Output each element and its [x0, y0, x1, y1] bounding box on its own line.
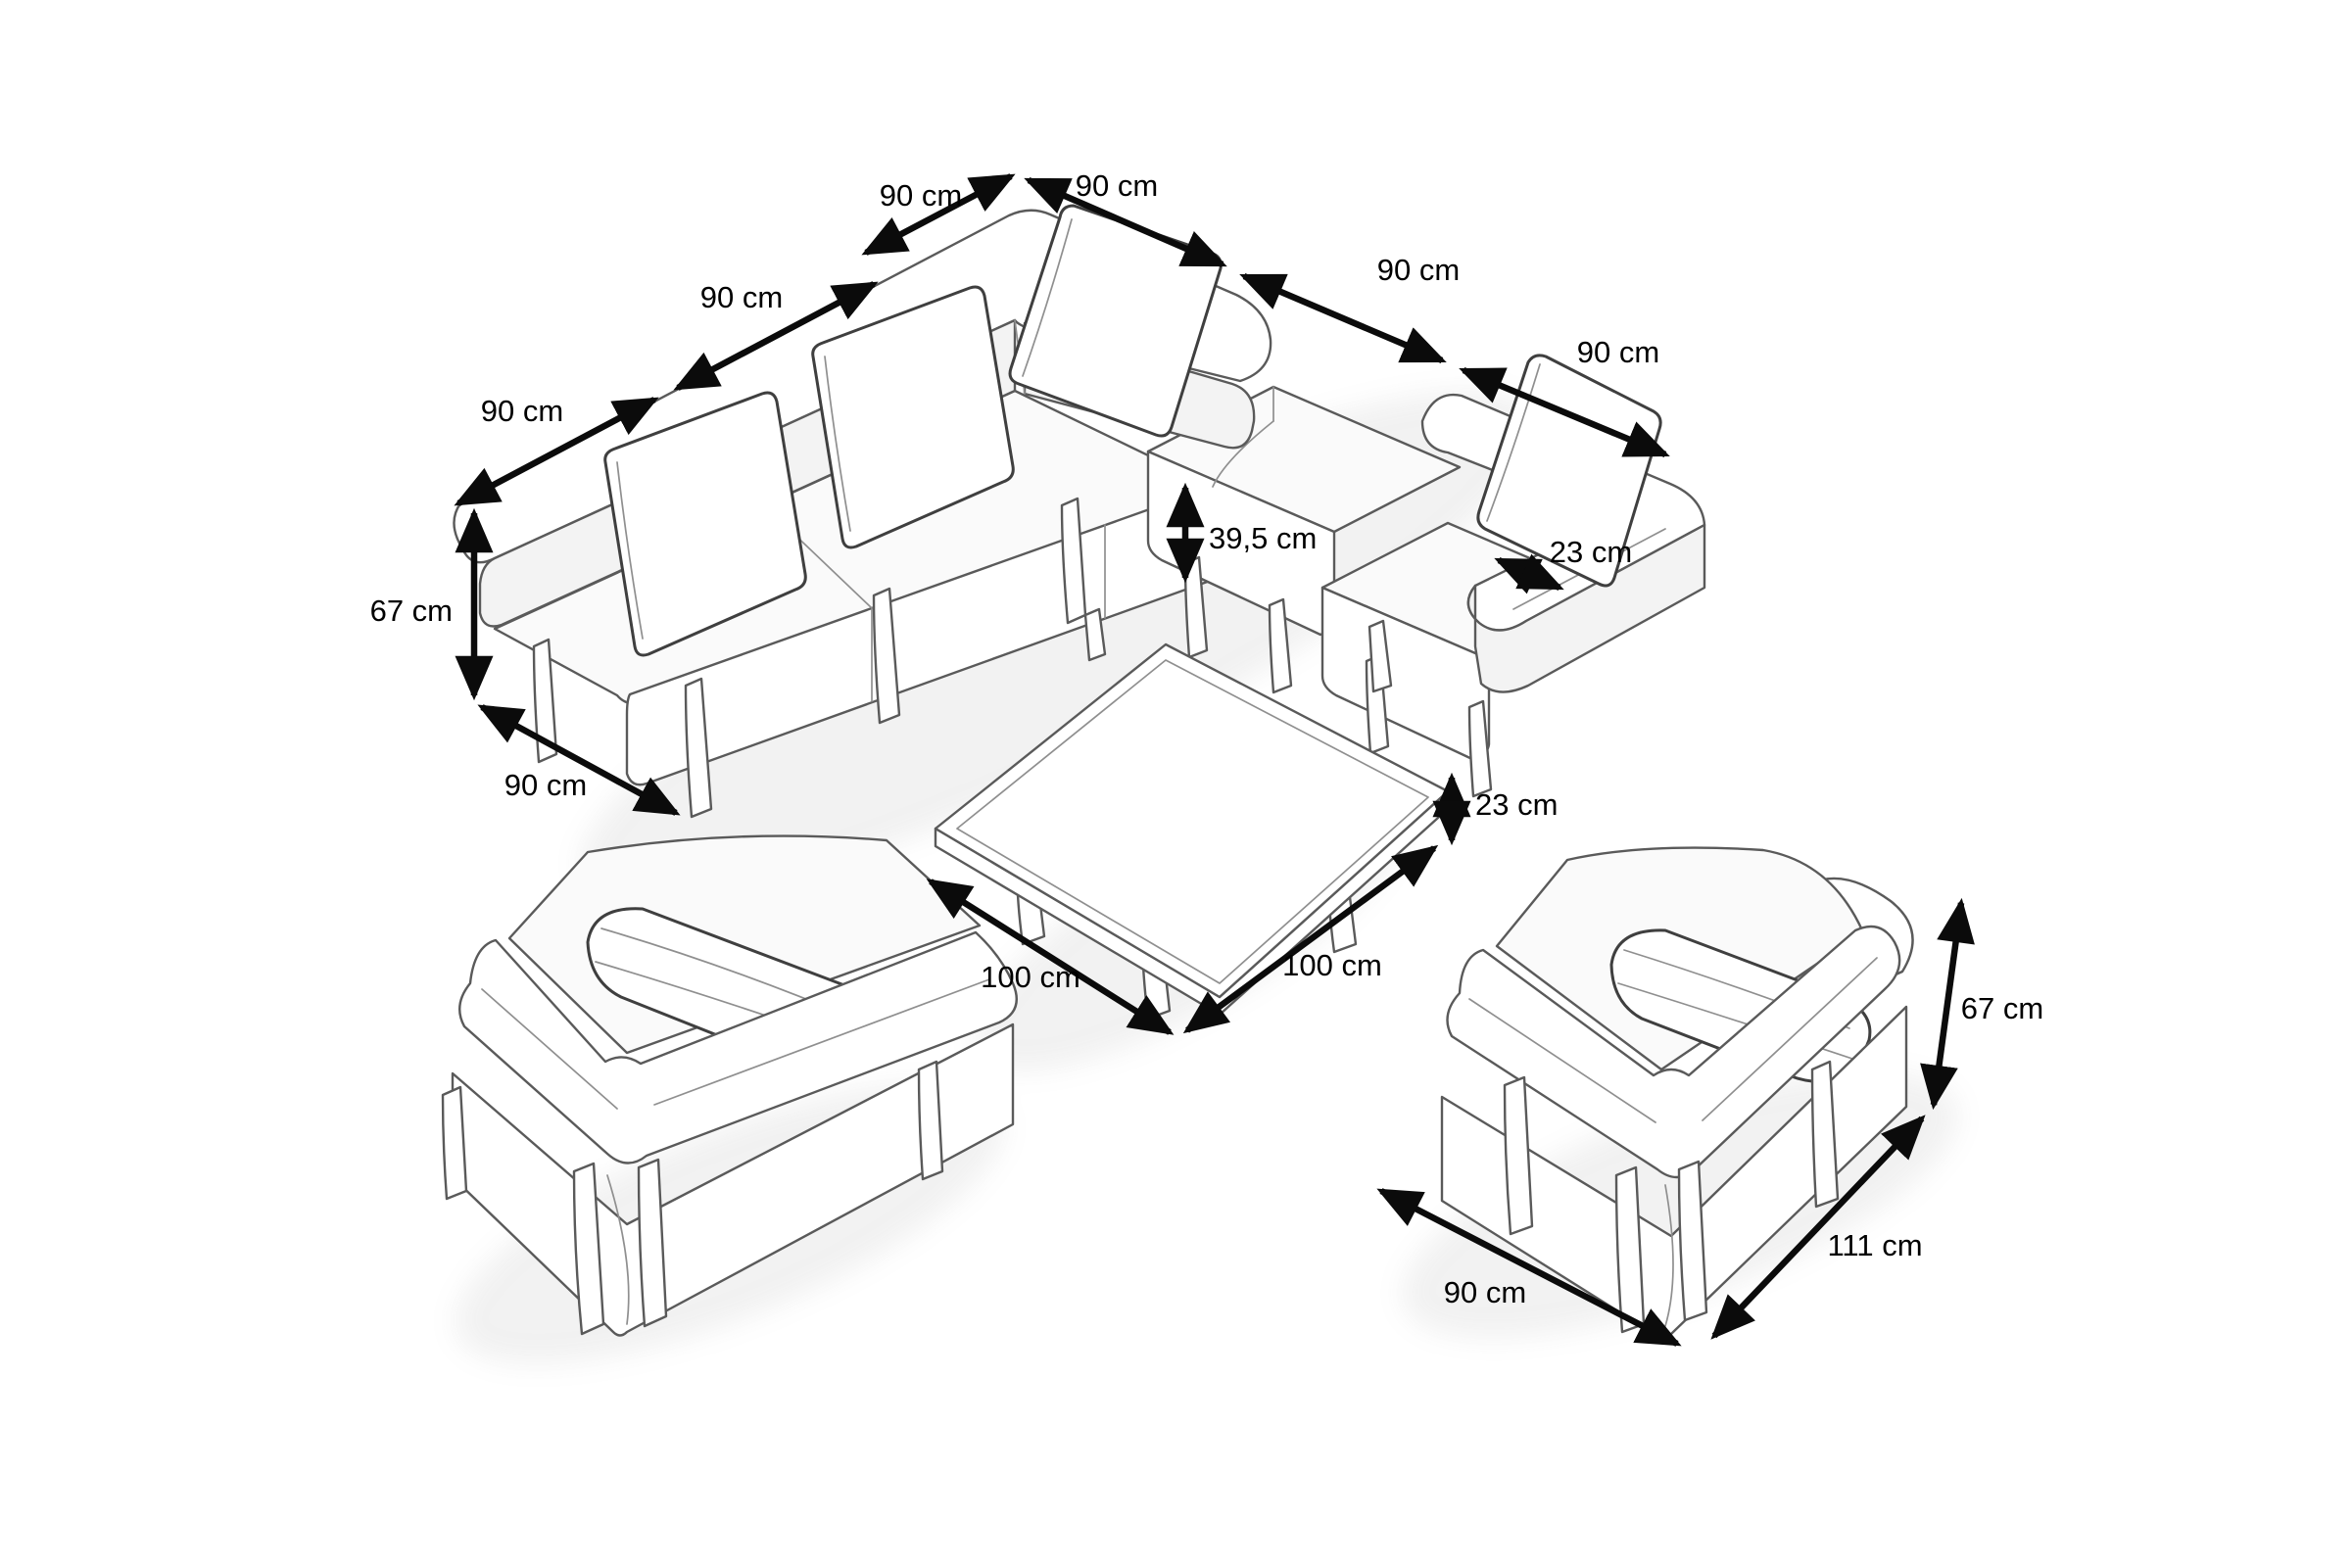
- dim-label-sofa-top-2: 90 cm: [1377, 253, 1460, 287]
- dim-label-sofa-left-3: 90 cm: [880, 178, 962, 213]
- armchair-right-leg-1: [1505, 1077, 1532, 1234]
- furniture-diagram-svg: 90 cm 90 cm 90 cm 90 cm 90 cm 90 cm 67 c…: [0, 0, 2351, 1568]
- dim-label-armchair-depth: 111 cm: [1827, 1228, 1922, 1262]
- dim-label-sofa-height: 67 cm: [370, 594, 453, 628]
- dim-label-sofa-depth: 90 cm: [504, 768, 587, 802]
- dim-label-table-height: 23 cm: [1475, 787, 1558, 822]
- dim-arrow-armchair-height: [1934, 903, 1961, 1105]
- dim-label-sofa-armrest: 23 cm: [1550, 535, 1632, 569]
- dim-label-sofa-left-1: 90 cm: [481, 394, 563, 428]
- dim-label-sofa-top-3: 90 cm: [1577, 335, 1659, 369]
- dim-label-armchair-width: 90 cm: [1444, 1275, 1526, 1309]
- dim-label-table-left: 100 cm: [981, 960, 1080, 994]
- dim-label-table-right: 100 cm: [1282, 948, 1382, 982]
- dim-label-armchair-height: 67 cm: [1961, 991, 2043, 1025]
- diagram-canvas: 90 cm 90 cm 90 cm 90 cm 90 cm 90 cm 67 c…: [0, 0, 2351, 1568]
- dim-label-sofa-top-1: 90 cm: [1076, 168, 1158, 203]
- dim-label-sofa-seat-height: 39,5 cm: [1209, 521, 1317, 555]
- dim-arrow-sofa-top-2: [1244, 276, 1442, 360]
- dim-label-sofa-left-2: 90 cm: [700, 280, 783, 314]
